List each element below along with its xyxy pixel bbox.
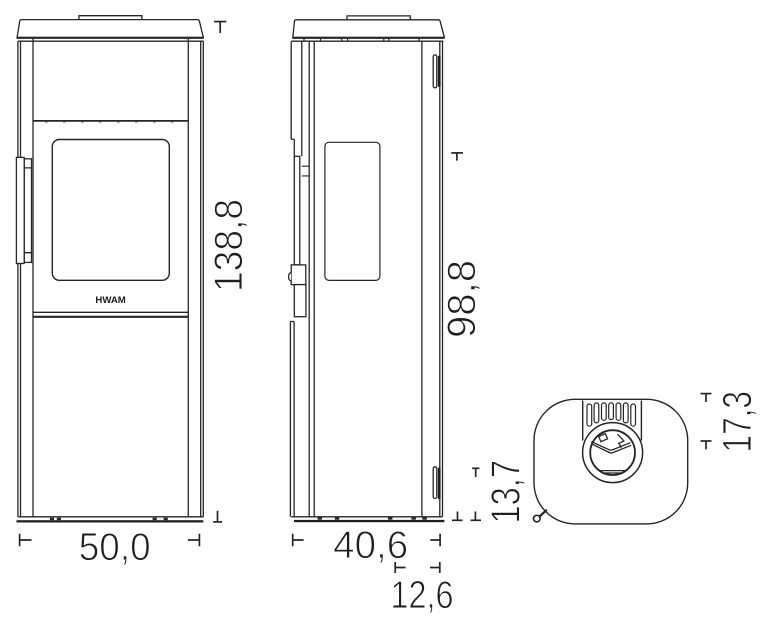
svg-text:40,6: 40,6: [333, 524, 408, 567]
svg-text:17,3: 17,3: [714, 391, 760, 453]
svg-text:50,0: 50,0: [79, 526, 151, 569]
svg-text:12,6: 12,6: [391, 574, 454, 617]
svg-text:13,7: 13,7: [483, 460, 529, 524]
svg-text:HWAM: HWAM: [95, 295, 125, 305]
svg-text:138,8: 138,8: [207, 199, 251, 292]
svg-text:98,8: 98,8: [440, 260, 484, 338]
